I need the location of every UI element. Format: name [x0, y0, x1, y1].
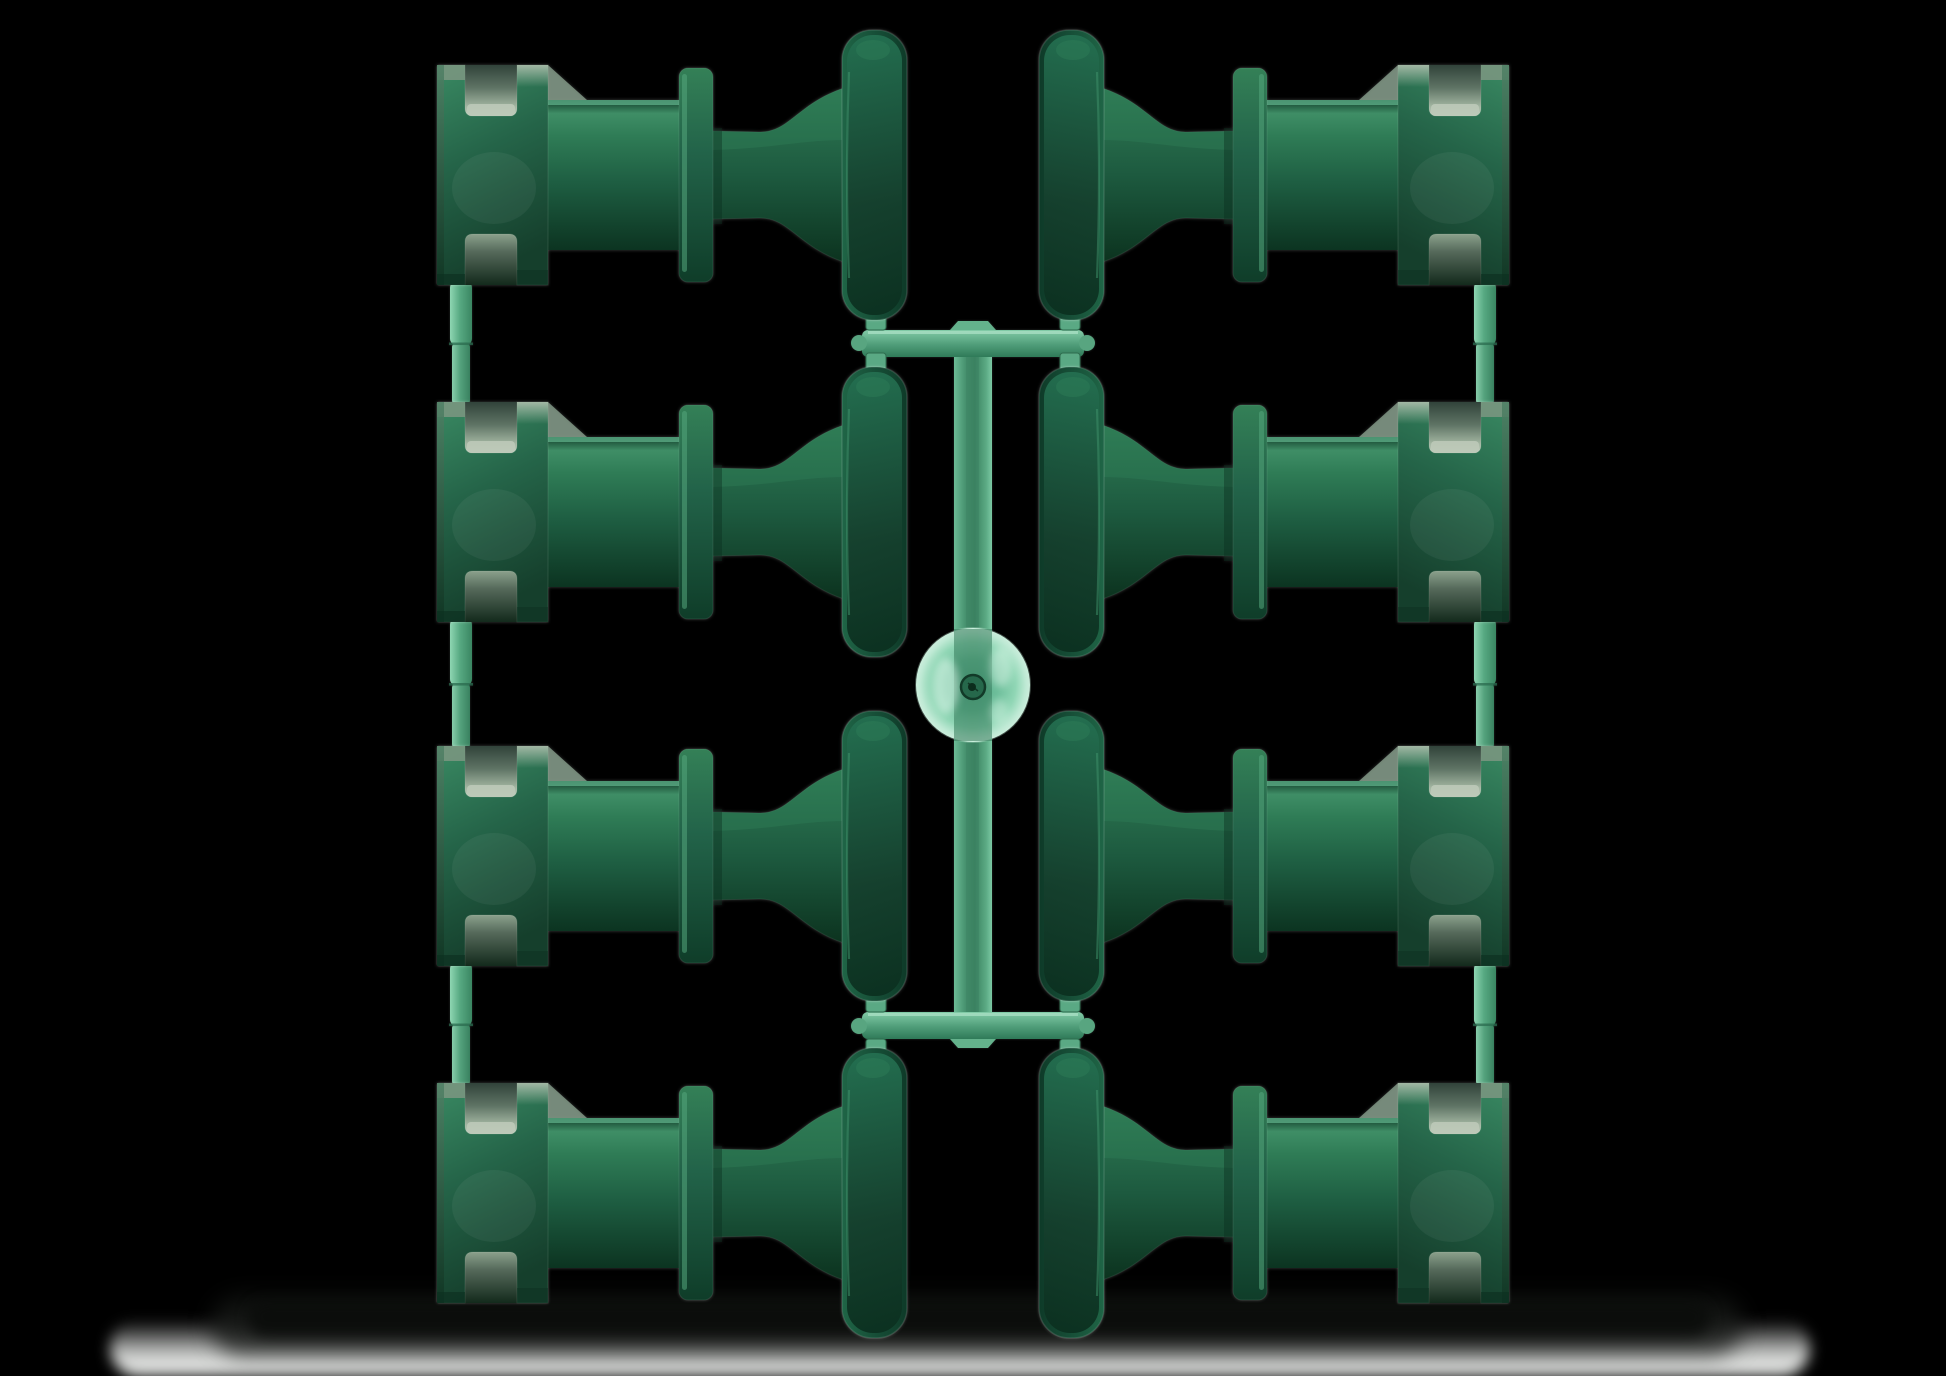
runner-stem-bump-2: [950, 1039, 996, 1048]
tie-segment-lower-3: [452, 1023, 470, 1088]
runner-end-nub-4: [1079, 1018, 1095, 1034]
part-row1-right: [1039, 30, 1509, 320]
runner-crossbar-1: [862, 330, 1084, 357]
tie-joint-3: [449, 1024, 473, 1027]
tie-joint-5: [1473, 683, 1497, 686]
sprue-gate-puck: [916, 628, 1030, 742]
tie-segment-upper-2: [450, 618, 472, 686]
tie-segment-lower-1: [452, 342, 470, 407]
tie-segment-upper-6: [1474, 962, 1496, 1027]
sprue-photo: [0, 0, 1946, 1376]
tie-segment-upper-1: [450, 281, 472, 346]
runner-crossbar-2: [862, 1012, 1084, 1039]
part-row1-left: [437, 30, 907, 320]
runner-stem-bump-1: [950, 321, 996, 330]
tie-segment-lower-2: [452, 682, 470, 750]
puck-swirl-left: [933, 658, 959, 714]
parts-column-right: [1039, 30, 1509, 1338]
runner-crossbar-highlight-2: [868, 1013, 1078, 1016]
part-row4-left: [437, 1048, 907, 1338]
puck-swirl-bottom: [990, 699, 1008, 725]
tie-joint-4: [1473, 343, 1497, 346]
tie-segment-upper-4: [1474, 281, 1496, 346]
tie-segment-lower-4: [1476, 342, 1494, 407]
runner-end-nub-2: [1079, 335, 1095, 351]
part-row4-right: [1039, 1048, 1509, 1338]
tie-joint-2: [449, 683, 473, 686]
parts-column-left: [437, 30, 907, 1338]
tie-joint-6: [1473, 1024, 1497, 1027]
tie-segment-upper-3: [450, 962, 472, 1027]
part-row2-right: [1039, 367, 1509, 657]
tie-segment-lower-6: [1476, 1023, 1494, 1088]
part-row3-right: [1039, 711, 1509, 1001]
tie-segment-upper-5: [1474, 618, 1496, 686]
runner-crossbar-highlight-1: [868, 331, 1078, 334]
runner-end-nub-1: [851, 335, 867, 351]
part-row3-left: [437, 711, 907, 1001]
tie-joint-1: [449, 343, 473, 346]
puck-swirl-right: [990, 647, 1012, 687]
tie-segment-lower-5: [1476, 682, 1494, 750]
runner-end-nub-3: [851, 1018, 867, 1034]
part-row2-left: [437, 367, 907, 657]
product-photo-stage: [0, 0, 1946, 1376]
